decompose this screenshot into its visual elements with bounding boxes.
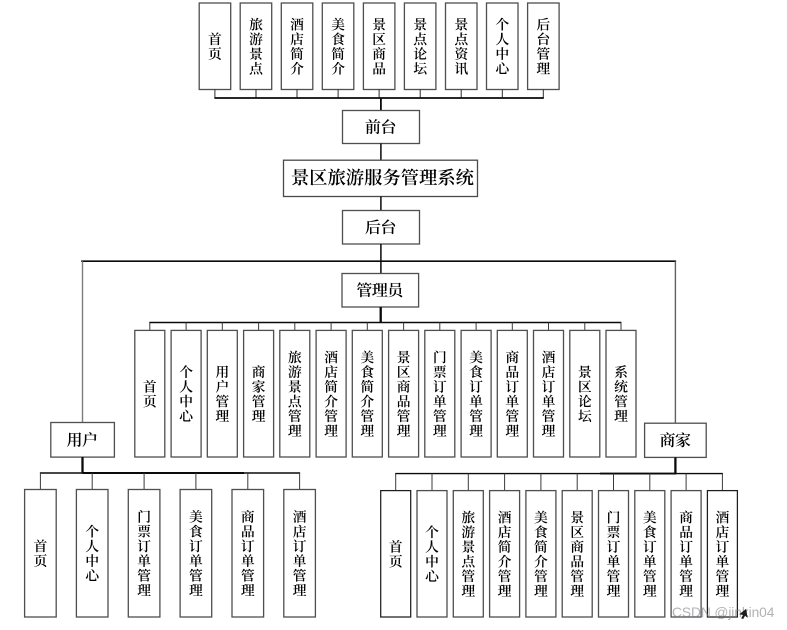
svg-text:CSDN @jinkin04: CSDN @jinkin04 — [672, 605, 775, 620]
